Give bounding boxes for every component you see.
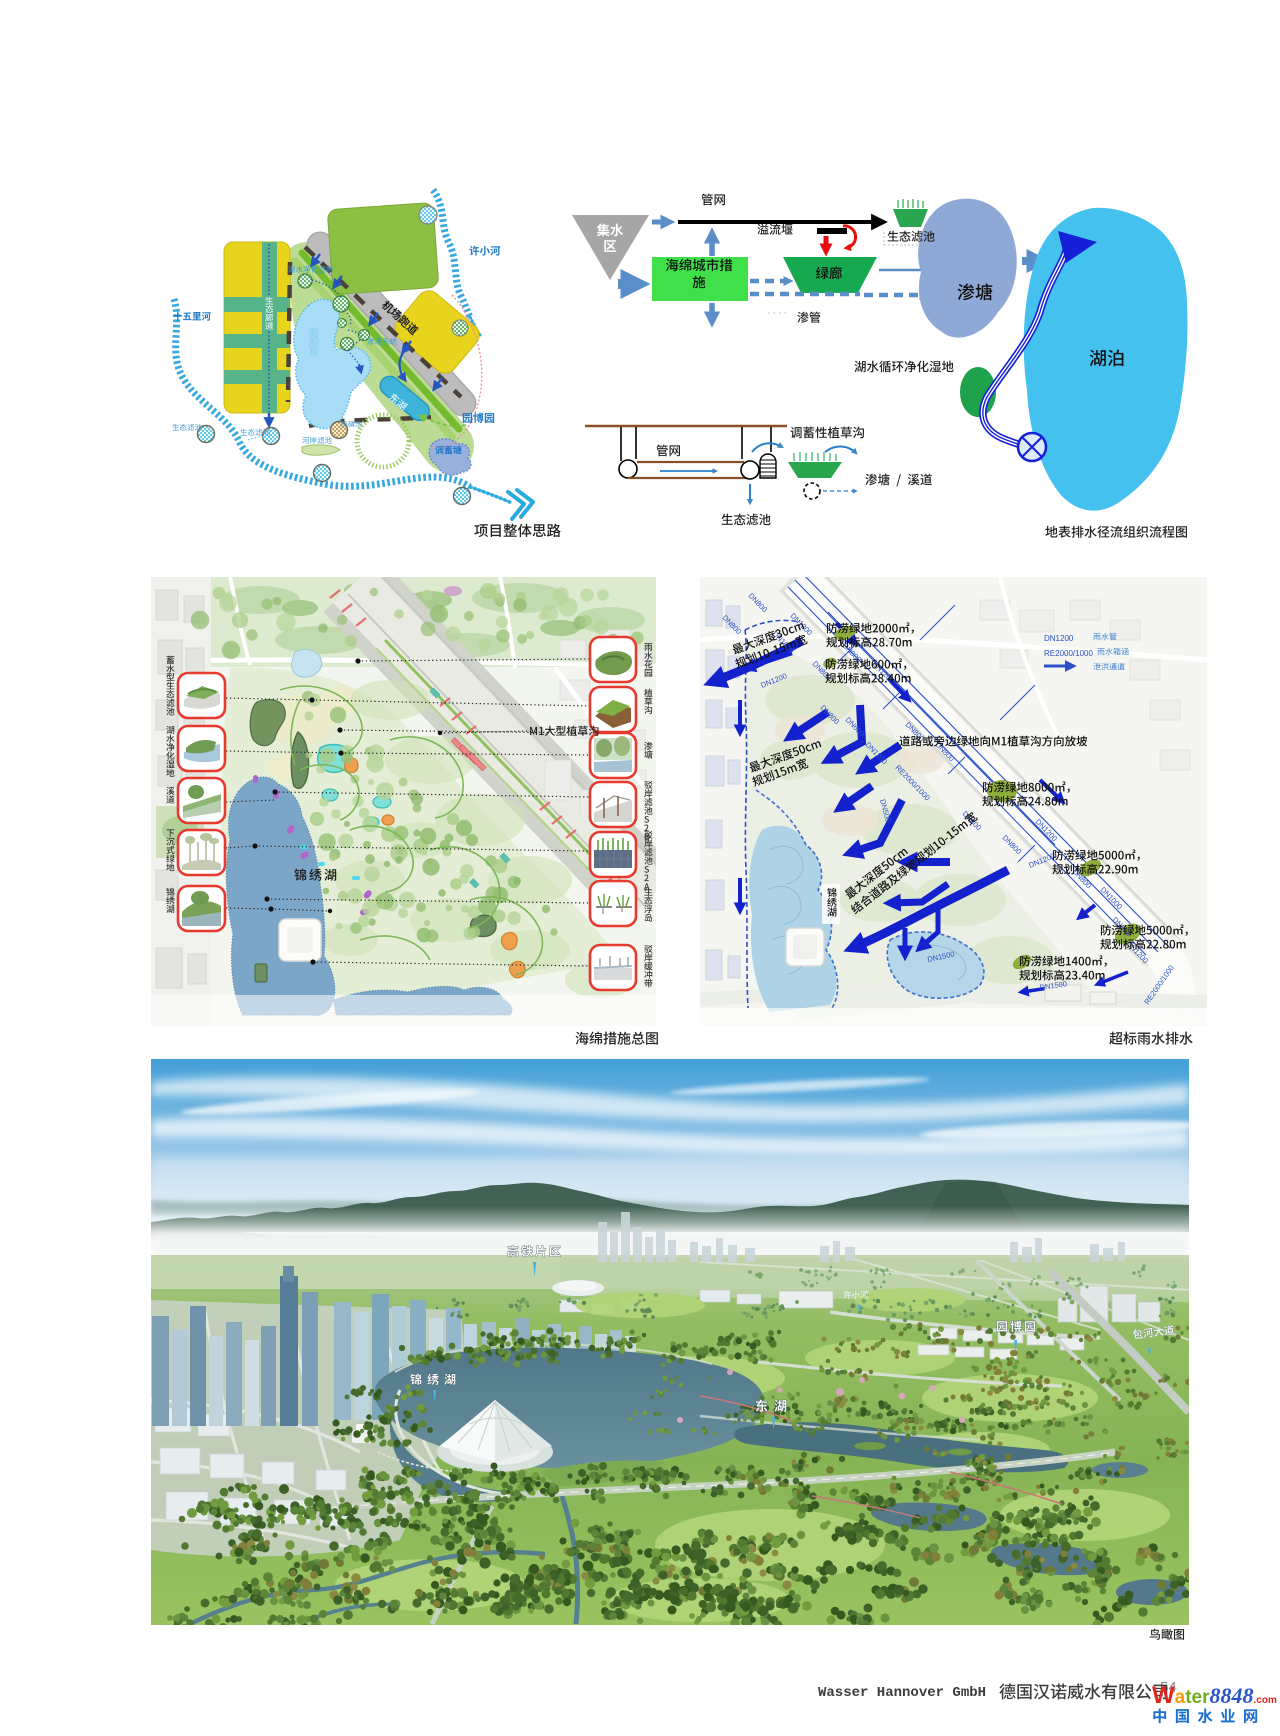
svg-text:DN1200: DN1200 bbox=[1044, 634, 1074, 643]
svg-text:RE2000/1000: RE2000/1000 bbox=[1044, 649, 1093, 658]
